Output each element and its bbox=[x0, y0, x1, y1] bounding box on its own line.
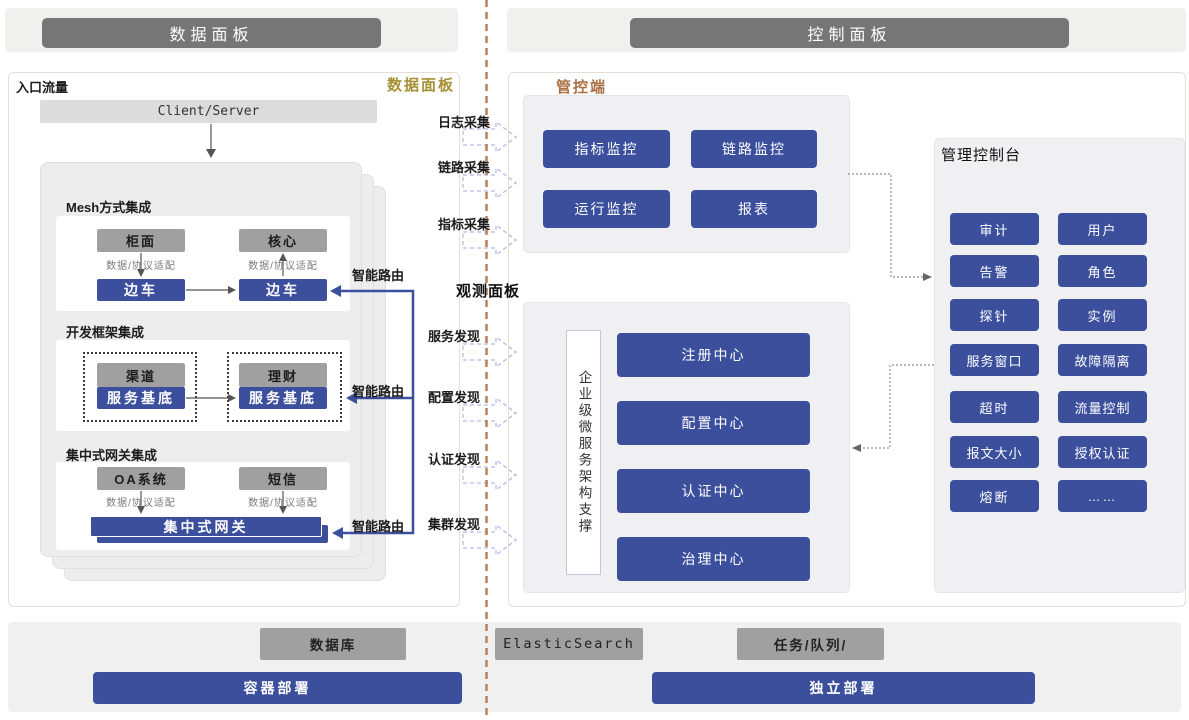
gateway-bar: 集中式网关 bbox=[90, 516, 322, 537]
flow-label-config-discovery: 配置发现 bbox=[428, 387, 480, 406]
console-item-circuit-break: 熔断 bbox=[950, 480, 1039, 512]
monitor-panel bbox=[523, 95, 850, 253]
console-item-instance: 实例 bbox=[1058, 299, 1147, 331]
console-item-timeout: 超时 bbox=[950, 391, 1039, 423]
smart-route-label-3: 智能路由 bbox=[352, 516, 404, 535]
manage-end-label: 管控端 bbox=[556, 76, 607, 97]
config-center-button: 配置中心 bbox=[617, 401, 810, 445]
console-item-alert: 告警 bbox=[950, 255, 1039, 287]
observe-panel-label: 观测面板 bbox=[456, 280, 520, 301]
data-plane-corner-label: 数据面板 bbox=[300, 74, 455, 95]
client-server-bar: Client/Server bbox=[40, 100, 377, 123]
management-console-title: 管理控制台 bbox=[941, 144, 1021, 165]
smart-route-label-1: 智能路由 bbox=[352, 265, 404, 284]
flow-label-metric-collect: 指标采集 bbox=[438, 214, 490, 233]
framework-left-app: 渠道 bbox=[97, 363, 185, 387]
console-item-probe: 探针 bbox=[950, 299, 1039, 331]
task-queue-box: 任务/队列/ bbox=[737, 628, 884, 660]
database-box: 数据库 bbox=[260, 628, 406, 660]
mesh-left-sidecar: 边车 bbox=[97, 279, 185, 301]
metric-monitor-button: 指标监控 bbox=[543, 130, 670, 168]
auth-center-button: 认证中心 bbox=[617, 469, 810, 513]
enterprise-support-vertical-label: 企业级微服务架构支撑 bbox=[566, 330, 601, 575]
flow-label-cluster-discovery: 集群发现 bbox=[428, 514, 480, 533]
gateway-left-adapter-label: 数据/协议适配 bbox=[85, 494, 197, 509]
console-item-auth-cert: 授权认证 bbox=[1058, 436, 1147, 468]
mesh-right-sidecar: 边车 bbox=[239, 279, 327, 301]
mesh-left-adapter-label: 数据/协议适配 bbox=[85, 257, 197, 272]
flow-label-log-collect: 日志采集 bbox=[438, 112, 490, 131]
smart-route-label-2: 智能路由 bbox=[352, 381, 404, 400]
mesh-right-adapter-label: 数据/协议适配 bbox=[227, 257, 339, 272]
gateway-left-app: OA系统 bbox=[97, 467, 185, 490]
mesh-section-title: Mesh方式集成 bbox=[66, 197, 151, 216]
trace-monitor-button: 链路监控 bbox=[691, 130, 817, 168]
flow-label-auth-discovery: 认证发现 bbox=[428, 449, 480, 468]
data-plane-header: 数据面板 bbox=[42, 18, 381, 48]
console-item-user: 用户 bbox=[1058, 213, 1147, 245]
governance-center-button: 治理中心 bbox=[617, 537, 810, 581]
mesh-left-app: 柜面 bbox=[97, 229, 185, 252]
flow-label-trace-collect: 链路采集 bbox=[438, 157, 490, 176]
gateway-section-title: 集中式网关集成 bbox=[66, 445, 157, 464]
gateway-right-app: 短信 bbox=[239, 467, 327, 490]
console-item-more: …… bbox=[1058, 480, 1147, 512]
console-item-service-window: 服务窗口 bbox=[950, 344, 1039, 376]
registry-center-button: 注册中心 bbox=[617, 333, 810, 377]
mesh-right-app: 核心 bbox=[239, 229, 327, 252]
entry-traffic-label: 入口流量 bbox=[16, 77, 68, 96]
framework-right-app: 理财 bbox=[239, 363, 327, 387]
elasticsearch-box: ElasticSearch bbox=[495, 628, 643, 660]
report-button: 报表 bbox=[691, 190, 817, 228]
container-deploy-bar: 容器部署 bbox=[93, 672, 462, 704]
standalone-deploy-bar: 独立部署 bbox=[652, 672, 1035, 704]
gateway-right-adapter-label: 数据/协议适配 bbox=[227, 494, 339, 509]
control-plane-header: 控制面板 bbox=[630, 18, 1069, 48]
console-item-flow-control: 流量控制 bbox=[1058, 391, 1147, 423]
console-item-audit: 审计 bbox=[950, 213, 1039, 245]
framework-left-base: 服务基底 bbox=[97, 387, 185, 409]
architecture-diagram: 数据面板 控制面板 入口流量 数据面板 Client/Server Mesh方式… bbox=[0, 0, 1189, 720]
framework-section-title: 开发框架集成 bbox=[66, 322, 144, 341]
runtime-monitor-button: 运行监控 bbox=[543, 190, 670, 228]
console-item-message-size: 报文大小 bbox=[950, 436, 1039, 468]
console-item-fault-isolation: 故障隔离 bbox=[1058, 344, 1147, 376]
console-item-role: 角色 bbox=[1058, 255, 1147, 287]
framework-right-base: 服务基底 bbox=[239, 387, 327, 409]
flow-label-service-discovery: 服务发现 bbox=[428, 326, 480, 345]
